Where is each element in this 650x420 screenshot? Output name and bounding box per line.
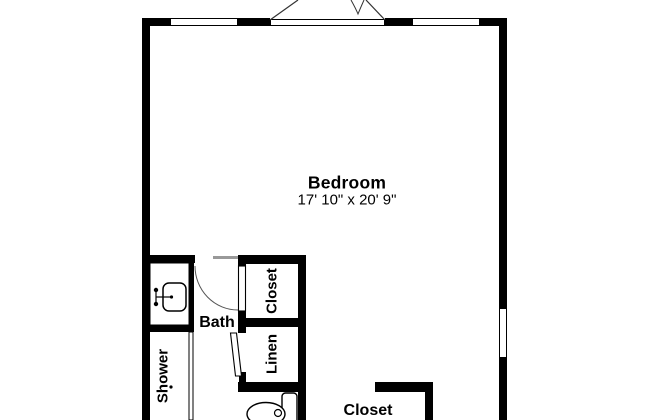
vanity-sink-icon — [150, 263, 189, 325]
bedroom-label: Bedroom — [308, 174, 386, 192]
upper-closet-label: Closet — [265, 268, 280, 314]
lower-closet-label: Closet — [344, 403, 393, 419]
bath-door-icon — [195, 266, 246, 311]
toilet-icon — [247, 393, 297, 420]
bedroom-dimensions: 17' 10" x 20' 9" — [298, 193, 397, 208]
fixtures-layer — [0, 0, 650, 420]
bath-label: Bath — [199, 315, 235, 331]
shower-enclosure-icon — [169, 332, 193, 420]
floor-plan: Bedroom 17' 10" x 20' 9" Bath Shower Clo… — [0, 0, 650, 420]
french-doors-icon — [270, 0, 385, 20]
shower-label: Shower — [156, 349, 171, 403]
linen-label: Linen — [265, 334, 280, 374]
linen-door-icon — [231, 333, 242, 376]
